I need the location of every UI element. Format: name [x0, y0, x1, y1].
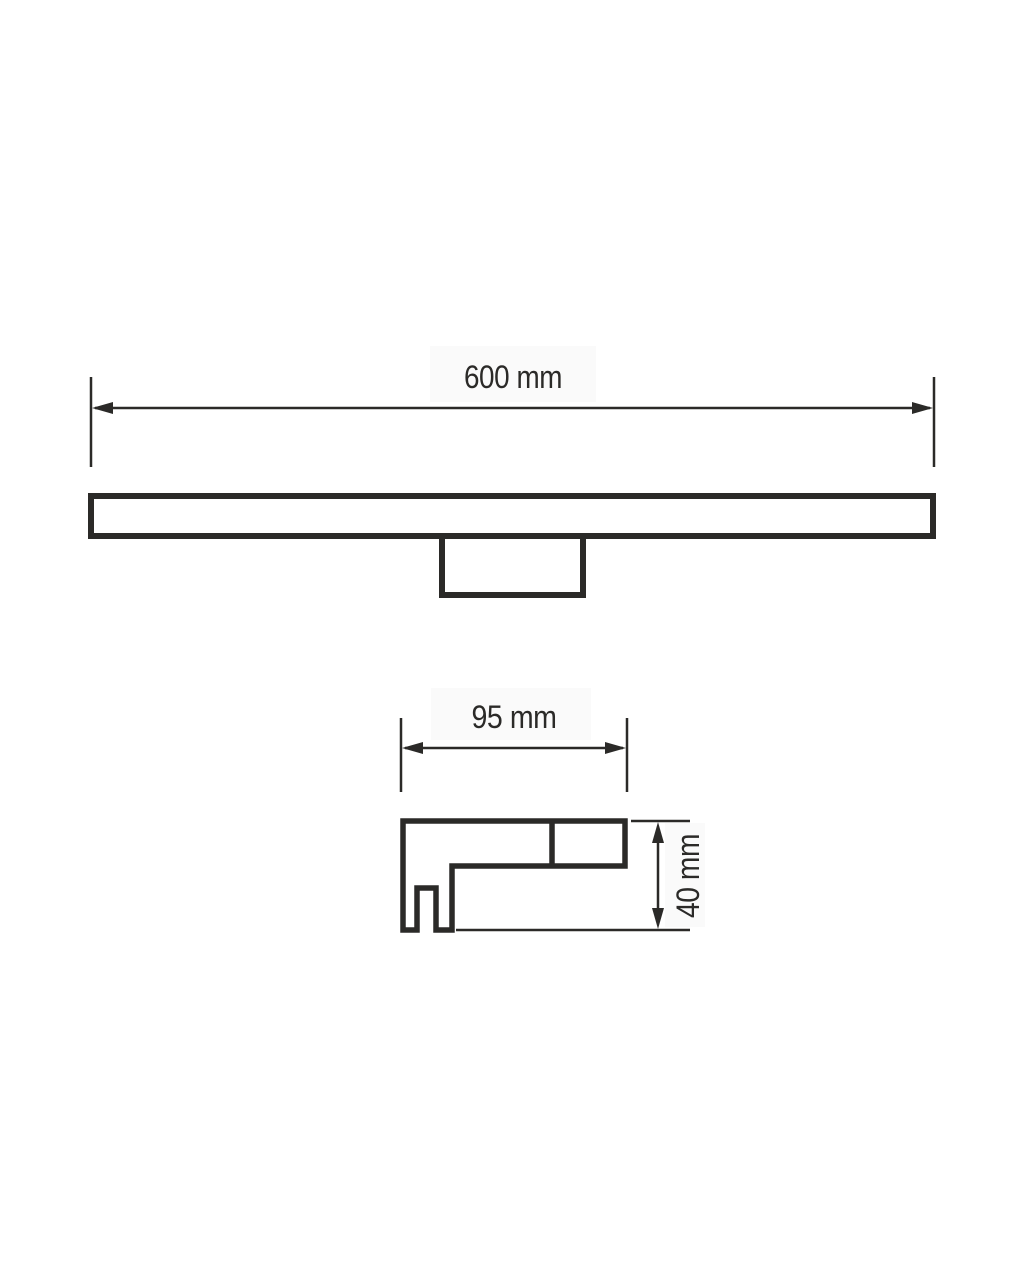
technical-dimension-drawing: 600 mm 95 mm — [0, 0, 1024, 1280]
arrowhead-left-icon — [402, 742, 423, 754]
front-width-dimension: 600 mm — [91, 346, 934, 467]
side-width-dimension-label: 95 mm — [472, 699, 557, 735]
front-view: 600 mm — [91, 346, 934, 595]
side-profile-outline — [403, 821, 625, 930]
arrowhead-right-icon — [912, 402, 933, 414]
side-view: 95 mm 40 mm — [401, 688, 706, 930]
side-height-dimension-label: 40 mm — [670, 834, 706, 918]
side-height-dimension: 40 mm — [456, 821, 706, 930]
front-width-dimension-label: 600 mm — [464, 359, 562, 395]
arrowhead-right-icon — [605, 742, 626, 754]
arrowhead-bottom-icon — [652, 908, 664, 929]
arrowhead-left-icon — [92, 402, 113, 414]
diagram-page: 600 mm 95 mm — [0, 0, 1024, 1280]
side-width-dimension: 95 mm — [401, 688, 627, 792]
arrowhead-top-icon — [652, 822, 664, 843]
mounting-bracket-outline — [442, 538, 583, 595]
light-bar-outline — [91, 496, 933, 536]
